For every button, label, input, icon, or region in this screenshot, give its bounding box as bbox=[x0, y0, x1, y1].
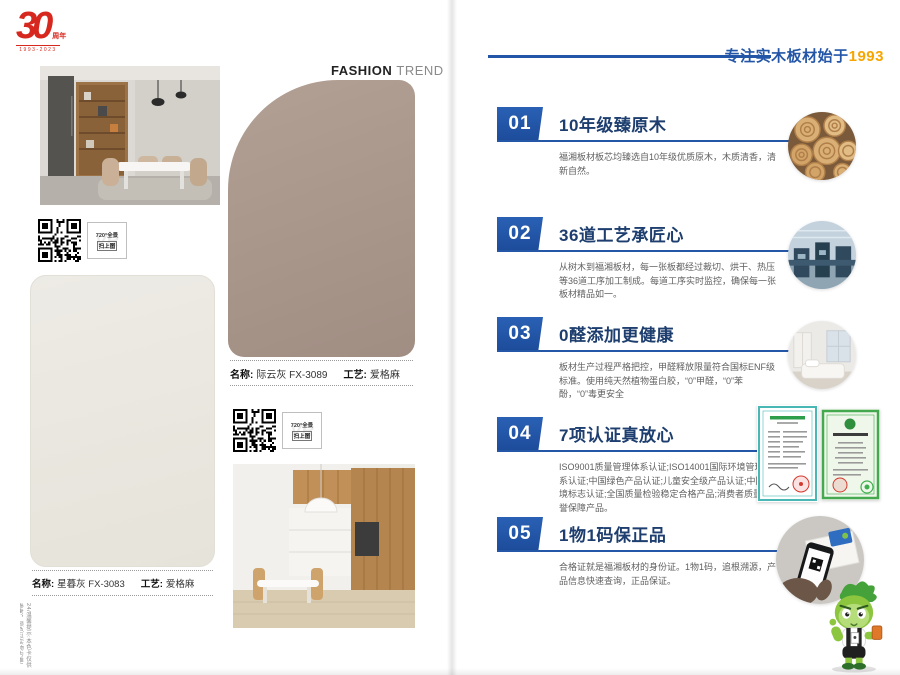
interior-photo bbox=[788, 321, 856, 389]
swatch1-craft: 爱格麻 bbox=[370, 366, 400, 381]
item-title: 1物1码保正品 bbox=[559, 521, 666, 546]
fashion-trend-light: TREND bbox=[396, 63, 443, 78]
swatch1-label: 名称: 际云灰 FX-3089 工艺: 爱格麻 bbox=[230, 360, 413, 386]
slogan-year: 1993 bbox=[849, 48, 884, 65]
swatch2-label: 名称: 星暮灰 FX-3083 工艺: 爱格麻 bbox=[32, 570, 213, 596]
swatch1-craft-label: 工艺: bbox=[343, 366, 366, 381]
scan-label: 扫上图 bbox=[97, 241, 118, 251]
feature-item-3: 03 0醛添加更健康 板材生产过程严格把控，甲醛释放限量符合国标ENF级标准。使… bbox=[497, 317, 812, 417]
color-swatch-jiyunhui bbox=[228, 80, 415, 357]
item-title: 10年级臻原木 bbox=[559, 111, 666, 136]
item-title: 36道工艺承匠心 bbox=[559, 221, 684, 246]
panorama-label: 720°全景 bbox=[96, 231, 118, 239]
swatch1-name: 际云灰 FX-3089 bbox=[256, 366, 327, 381]
item-title: 7项认证真放心 bbox=[559, 421, 674, 446]
certificate-document-green bbox=[821, 409, 880, 500]
brand-30th-anniversary-logo: 30周年 1993-2023 bbox=[16, 8, 86, 53]
item-number-badge: 04 bbox=[497, 417, 543, 450]
scan-label: 扫上图 bbox=[292, 431, 313, 441]
vr-panorama-tag: VR 720°全景 扫上图 bbox=[282, 412, 322, 449]
item-divider bbox=[497, 550, 812, 552]
swatch2-craft-label: 工艺: bbox=[141, 576, 163, 590]
logo-suffix: 周年 bbox=[52, 33, 66, 40]
item-number-badge: 05 bbox=[497, 517, 543, 550]
page-edge-shadow bbox=[0, 668, 900, 675]
swatch2-name-label: 名称: bbox=[32, 576, 54, 590]
vr-panorama-tag: VR 720°全景 扫上图 bbox=[87, 222, 127, 259]
green-mascot bbox=[813, 577, 893, 673]
feature-item-1: 01 10年级臻原木 福湘板材板芯均臻选自10年级优质原木，木质清香，清新自然。 bbox=[497, 107, 812, 207]
item-divider bbox=[497, 250, 812, 252]
swatch2-name: 星暮灰 FX-3083 bbox=[57, 576, 125, 590]
wood-logs-photo bbox=[788, 112, 856, 180]
fashion-trend-bold: FASHION bbox=[331, 63, 392, 78]
panorama-label: 720°全景 bbox=[291, 421, 313, 429]
slogan-text: 专注实木板材始于 bbox=[725, 48, 849, 65]
item-title: 0醛添加更健康 bbox=[559, 321, 674, 346]
item-number-badge: 01 bbox=[497, 107, 543, 140]
feature-item-5: 05 1物1码保正品 合格证就是福湘板材的身份证。1物1码，追根溯源，产品信息快… bbox=[497, 517, 812, 617]
brand-slogan: 专注实木板材始于1993 bbox=[725, 45, 884, 66]
certificate-document bbox=[757, 405, 818, 502]
page-fold-divider bbox=[447, 0, 457, 675]
logo-number: 30 bbox=[16, 5, 48, 47]
feature-item-2: 02 36道工艺承匠心 从树木到福湘板材，每一张板都经过裁切、烘干、热压等36道… bbox=[497, 217, 812, 317]
fashion-trend-caption: FASHION TREND bbox=[331, 63, 444, 78]
kitchen-photo bbox=[233, 464, 415, 628]
item-description: 从树木到福湘板材，每一张板都经过裁切、烘干、热压等36道工序加工制成。每道工序实… bbox=[559, 261, 777, 302]
dining-room-photo bbox=[40, 66, 220, 205]
item-number-badge: 02 bbox=[497, 217, 543, 250]
swatch2-craft: 爱格麻 bbox=[166, 576, 195, 590]
item-divider bbox=[497, 350, 812, 352]
item-number-badge: 03 bbox=[497, 317, 543, 350]
color-swatch-xingmuhui bbox=[30, 275, 215, 567]
item-divider bbox=[497, 140, 812, 142]
catalog-spread: 30周年 1993-2023 FASHION TREND bbox=[0, 0, 900, 675]
factory-photo bbox=[788, 221, 856, 289]
item-description: 合格证就是福湘板材的身份证。1物1码，追根溯源，产品信息快速查询，正品保证。 bbox=[559, 561, 777, 588]
item-description: ISO9001质量管理体系认证;ISO14001国际环境管理体系认证;中国绿色产… bbox=[559, 461, 777, 515]
page-footnote: 24/温馨提示:本色卡仅供参考，颜色以实物为准! bbox=[20, 603, 32, 669]
qr-code bbox=[233, 409, 276, 452]
swatch1-name-label: 名称: bbox=[230, 366, 253, 381]
logo-years: 1993-2023 bbox=[16, 45, 60, 53]
item-description: 福湘板材板芯均臻选自10年级优质原木，木质清香，清新自然。 bbox=[559, 151, 777, 178]
item-description: 板材生产过程严格把控，甲醛释放限量符合国标ENF级标准。使用纯天然植物蛋白胶，“… bbox=[559, 361, 777, 402]
qr-code bbox=[38, 219, 81, 262]
